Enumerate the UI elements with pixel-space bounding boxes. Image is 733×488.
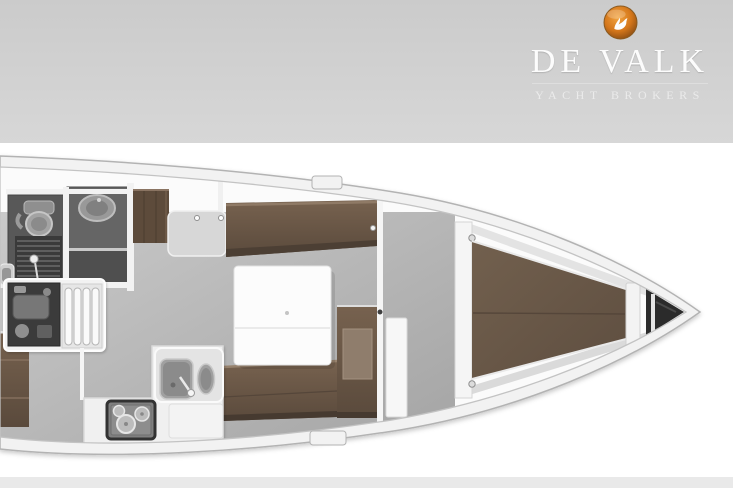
shower-bench-edge bbox=[67, 248, 128, 251]
door-knob bbox=[378, 310, 383, 315]
toerail-gate-bottom bbox=[310, 431, 346, 445]
locker-knob bbox=[219, 216, 224, 221]
saloon-table bbox=[234, 266, 335, 369]
companionway-unit bbox=[4, 279, 105, 351]
shower-head bbox=[30, 255, 38, 263]
shower-room bbox=[67, 187, 128, 284]
brand-name: DE VALK bbox=[530, 44, 710, 80]
header-banner: DE VALK YACHT BROKERS bbox=[0, 0, 733, 143]
galley-stove bbox=[107, 401, 155, 439]
bow-bulkhead bbox=[626, 283, 640, 347]
brand-logo-block: DE VALK YACHT BROKERS bbox=[530, 5, 710, 103]
faucet bbox=[188, 390, 195, 397]
brand-tagline: YACHT BROKERS bbox=[530, 88, 710, 103]
forward-cabin-door bbox=[386, 318, 407, 417]
head-compartment bbox=[8, 195, 66, 284]
galley-locker-door bbox=[169, 404, 223, 438]
settee-knob bbox=[371, 226, 376, 231]
nav-cabinet bbox=[337, 305, 379, 418]
page: DE VALK YACHT BROKERS bbox=[0, 0, 733, 488]
mast-step bbox=[469, 235, 475, 241]
falcon-badge-icon bbox=[603, 5, 638, 40]
footer-strip bbox=[0, 477, 733, 488]
wardrobe bbox=[133, 189, 169, 243]
chart-seat bbox=[168, 211, 226, 256]
galley-partition bbox=[80, 348, 84, 400]
starboard-settee bbox=[223, 361, 337, 421]
brand-rule bbox=[532, 83, 708, 84]
locker-knob bbox=[195, 216, 200, 221]
mast-step bbox=[469, 381, 475, 387]
toerail-gate-top bbox=[312, 176, 342, 189]
companionway-steps bbox=[62, 284, 102, 348]
